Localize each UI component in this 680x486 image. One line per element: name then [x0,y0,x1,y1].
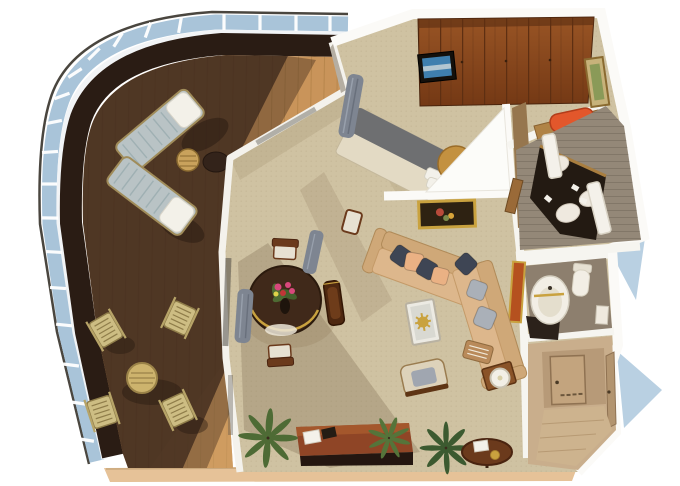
guest-bathroom [524,258,612,340]
closet-handle [607,390,610,393]
dining-chair-bottom [266,344,293,367]
still-life-painting [419,200,476,228]
teak-side-table [177,149,199,171]
dining-chair-top [271,238,298,259]
cabin-door [550,355,586,404]
faucet-handle [548,286,552,290]
master-bathroom [505,102,641,250]
tv [418,51,457,83]
storage-shelf [595,306,608,325]
console-desk [296,423,413,466]
lamp-finial [498,376,503,381]
floorplan-rendering [0,0,680,486]
coffee-table [406,299,441,345]
sink-basin [538,287,562,317]
sofa-pillow [430,266,450,286]
floorplan-stage [0,0,680,486]
dark-round-table [203,152,229,172]
tablecloth [265,324,297,336]
deck-table [127,363,157,393]
